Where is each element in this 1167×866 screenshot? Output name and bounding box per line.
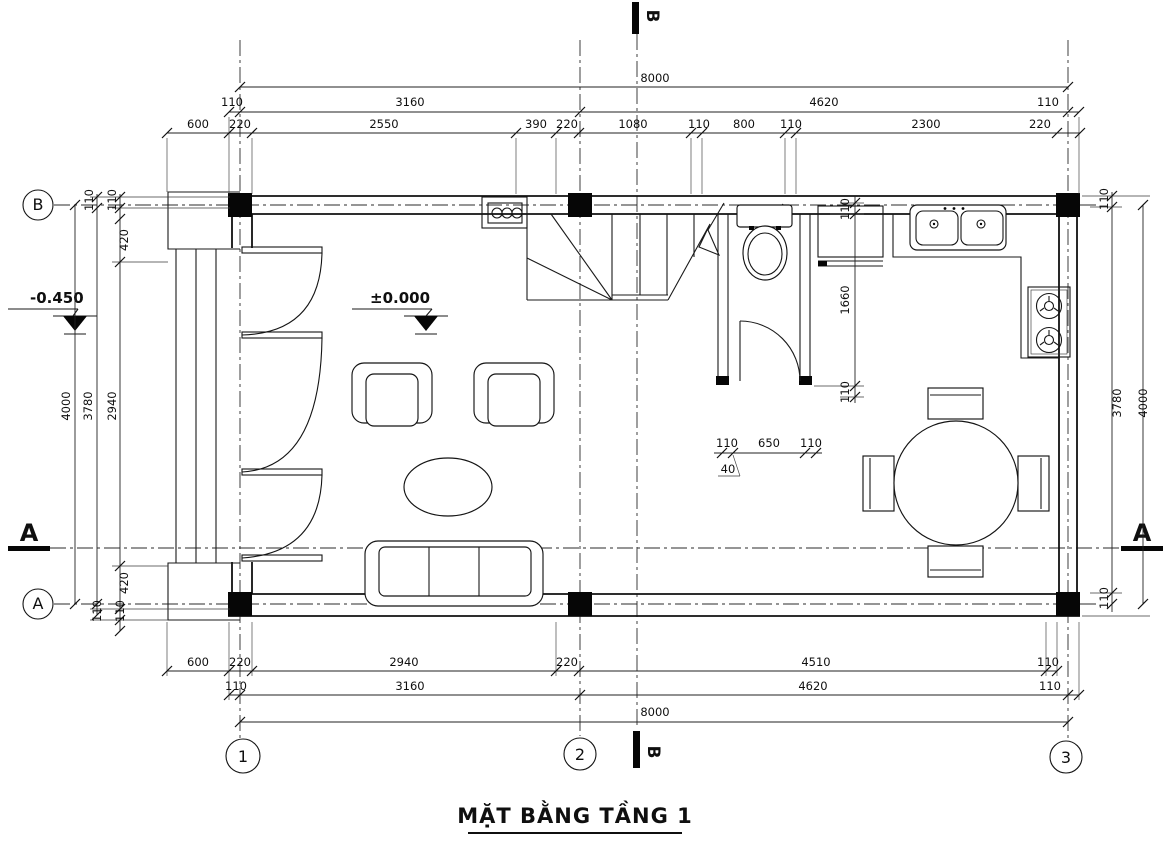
grid-lines bbox=[50, 34, 1120, 739]
dim-label: 110 bbox=[221, 95, 243, 109]
dim-label: 4000 bbox=[59, 391, 73, 420]
grid-label-2: 2 bbox=[575, 745, 585, 764]
dim-label: 2940 bbox=[389, 655, 418, 669]
dim-label: 110 bbox=[1097, 188, 1111, 210]
armchair bbox=[474, 363, 554, 426]
section-label-top: B bbox=[642, 10, 662, 23]
dim-label: 220 bbox=[229, 117, 251, 131]
level-value: -0.450 bbox=[30, 289, 84, 307]
dim-label: 220 bbox=[229, 655, 251, 669]
dim-label: 40 bbox=[721, 462, 736, 476]
dim-label: 110 bbox=[82, 189, 96, 211]
grid-label-3: 3 bbox=[1061, 748, 1071, 767]
dim-label: 4620 bbox=[809, 95, 838, 109]
floor-plan-drawing: -0.450 ±0.000 B A 1 2 3 B B A A 8000 110… bbox=[0, 0, 1167, 866]
dimensions-bottom: 600 220 2940 220 4510 110 110 3160 4620 … bbox=[162, 622, 1084, 727]
dim-label: 110 bbox=[105, 189, 119, 211]
porch-steps bbox=[168, 192, 240, 620]
break-line bbox=[668, 203, 724, 300]
dim-label: 3780 bbox=[81, 391, 95, 420]
dim-label: 3160 bbox=[395, 679, 424, 693]
dining-chair bbox=[1018, 456, 1049, 511]
dim-label: 110 bbox=[113, 600, 127, 622]
dim-label: 110 bbox=[838, 381, 852, 403]
dim-label: 4510 bbox=[801, 655, 830, 669]
dining-set bbox=[863, 388, 1049, 577]
dimensions-interior: 110 1660 110 110 650 110 40 bbox=[714, 196, 864, 476]
dim-label: 110 bbox=[688, 117, 710, 131]
wc-door bbox=[740, 321, 800, 381]
grid-label-1: 1 bbox=[238, 747, 248, 766]
drawing-title: MẶT BẰNG TẦNG 1 bbox=[457, 800, 692, 828]
armchair bbox=[352, 363, 432, 426]
grid-label-a: A bbox=[33, 594, 44, 613]
kitchen-sink-icon bbox=[910, 205, 1006, 250]
dim-label: 600 bbox=[187, 655, 209, 669]
dim-label: 4620 bbox=[798, 679, 827, 693]
dim-label: 390 bbox=[525, 117, 547, 131]
level-marker-floor: ±0.000 bbox=[352, 289, 448, 334]
folding-door bbox=[242, 247, 322, 561]
dining-table bbox=[894, 421, 1018, 545]
living-set bbox=[352, 363, 554, 606]
dimensions-top: 8000 110 3160 4620 110 600 220 2550 390 … bbox=[162, 71, 1085, 194]
dim-label: 420 bbox=[117, 572, 131, 594]
section-markers: B B A A bbox=[8, 2, 1163, 768]
dim-label: 110 bbox=[716, 436, 738, 450]
dim-label: 1080 bbox=[618, 117, 647, 131]
dim-label: 110 bbox=[800, 436, 822, 450]
dim-label: 800 bbox=[733, 117, 755, 131]
dim-label: 110 bbox=[1039, 679, 1061, 693]
dimensions-left: 110 110 420 2940 3780 4000 420 110 110 bbox=[59, 189, 230, 636]
dim-label: 3160 bbox=[395, 95, 424, 109]
dim-label: 110 bbox=[225, 679, 247, 693]
dim-label: 110 bbox=[1037, 655, 1059, 669]
dim-label: 3780 bbox=[1110, 388, 1124, 417]
dim-label: 110 bbox=[838, 198, 852, 220]
section-label-bottom: B bbox=[643, 746, 663, 759]
dim-label: 600 bbox=[187, 117, 209, 131]
floor-plan-canvas: -0.450 ±0.000 B A 1 2 3 B B A A 8000 110… bbox=[0, 0, 1167, 866]
shoe-cabinet-icon bbox=[482, 197, 527, 228]
dim-label: 220 bbox=[556, 655, 578, 669]
level-marker-porch: -0.450 bbox=[8, 289, 97, 334]
dim-label: 8000 bbox=[640, 705, 669, 719]
coffee-table bbox=[404, 458, 492, 516]
level-triangle-icon bbox=[414, 316, 438, 331]
level-value: ±0.000 bbox=[370, 289, 430, 307]
wc-room bbox=[716, 205, 812, 385]
dim-label: 2550 bbox=[369, 117, 398, 131]
dimensions-right: 110 3780 110 4000 bbox=[1082, 188, 1150, 616]
dim-label: 110 bbox=[1097, 587, 1111, 609]
toilet-fixture bbox=[737, 205, 792, 280]
dining-chair bbox=[928, 388, 983, 419]
dining-chair bbox=[928, 546, 983, 577]
grid-label-b: B bbox=[33, 195, 44, 214]
winder-tread-line bbox=[527, 258, 612, 300]
dim-label: 220 bbox=[556, 117, 578, 131]
drawing-title-block: MẶT BẰNG TẦNG 1 bbox=[457, 800, 692, 833]
section-label-right: A bbox=[1133, 519, 1152, 547]
stove-icon bbox=[1028, 287, 1070, 357]
dim-label: 4000 bbox=[1136, 388, 1150, 417]
section-label-left: A bbox=[20, 519, 39, 547]
dim-label: 110 bbox=[90, 600, 104, 622]
dim-label: 650 bbox=[758, 436, 780, 450]
winder-tread-line bbox=[551, 214, 612, 300]
dim-label: 8000 bbox=[640, 71, 669, 85]
sofa bbox=[365, 541, 543, 606]
dim-label: 110 bbox=[1037, 95, 1059, 109]
dim-label: 2300 bbox=[911, 117, 940, 131]
dim-label: 110 bbox=[780, 117, 802, 131]
dim-label: 1660 bbox=[838, 285, 852, 314]
kitchen bbox=[818, 205, 1070, 358]
dining-chair bbox=[863, 456, 894, 511]
dim-label: 420 bbox=[117, 229, 131, 251]
dim-label: 220 bbox=[1029, 117, 1051, 131]
dim-label: 2940 bbox=[105, 391, 119, 420]
